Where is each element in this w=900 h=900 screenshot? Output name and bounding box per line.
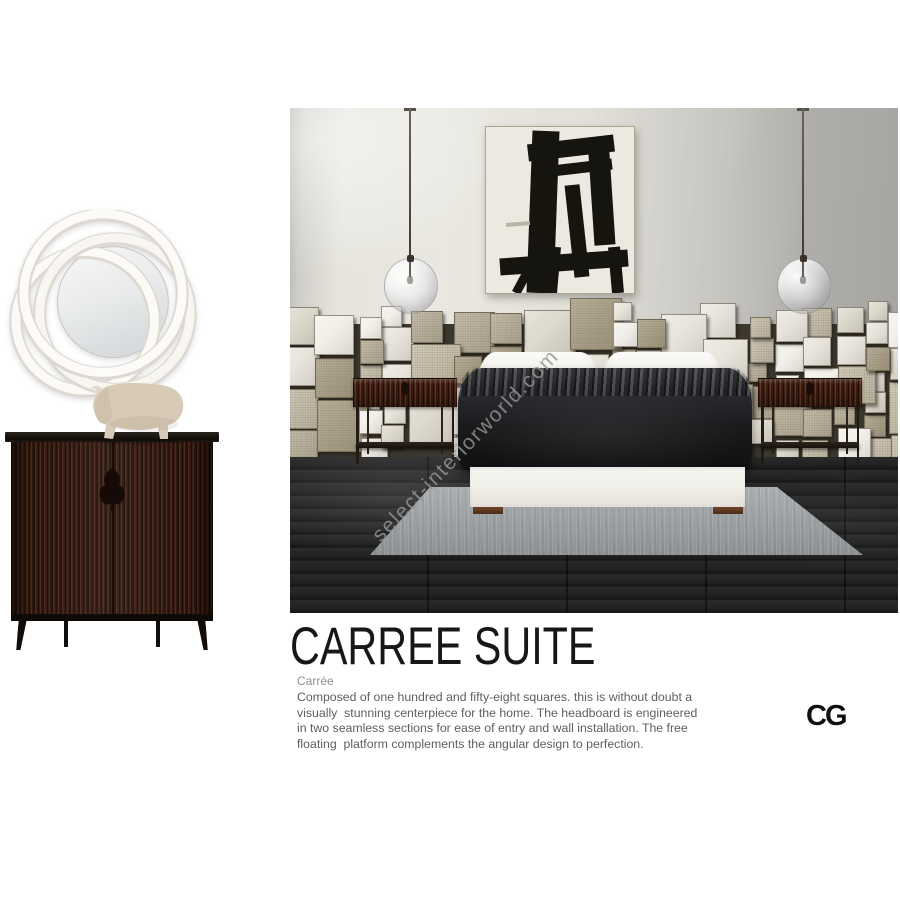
headboard-square	[775, 344, 803, 372]
headboard-square	[803, 337, 831, 365]
headboard-square	[613, 302, 632, 321]
brand-logo: CG	[806, 700, 846, 733]
headboard-square	[837, 336, 866, 365]
nightstand-leg	[857, 406, 860, 464]
platform-bed	[456, 350, 754, 516]
description-line: floating platform complements the angula…	[297, 737, 697, 753]
headboard-square	[866, 347, 890, 371]
headboard-square	[888, 312, 898, 348]
pendant-stem	[409, 262, 410, 277]
nightstand-shelf	[761, 442, 859, 448]
description-line: in two seamless sections for ease of ent…	[297, 721, 697, 737]
nightstand-right	[758, 378, 862, 464]
nightstand-handle	[400, 381, 411, 396]
headboard-square	[868, 301, 889, 322]
cabinet-leg	[156, 621, 160, 647]
headboard-square	[837, 307, 864, 334]
pendant-bulb	[407, 276, 413, 284]
accent-cabinet	[8, 432, 216, 650]
nightstand-leg	[356, 406, 359, 464]
headboard-square	[890, 348, 898, 380]
headboard-square	[380, 327, 414, 361]
cabinet-leg	[15, 621, 26, 650]
product-title: CARREE SUITE	[290, 620, 596, 673]
headboard-square	[637, 319, 666, 348]
description-line: Composed of one hundred and fifty-eight …	[297, 690, 697, 706]
bed-wood-foot	[473, 507, 503, 514]
headboard-square	[866, 322, 888, 344]
pendant-stem	[802, 262, 803, 277]
headboard-square	[613, 322, 638, 347]
nightstand-shelf	[356, 442, 454, 448]
bed-wood-foot	[713, 507, 743, 514]
headboard-square	[360, 317, 382, 339]
nightstand-handle	[805, 381, 816, 396]
sculpture-horn	[91, 386, 102, 393]
product-description: Composed of one hundred and fifty-eight …	[297, 690, 697, 753]
sculpture-shadow	[99, 439, 183, 445]
pendant-fitting	[407, 255, 414, 262]
page-canvas: { "branding": { "watermark": "select-int…	[0, 0, 900, 900]
cabinet-leg	[64, 621, 68, 647]
headboard-square	[360, 340, 384, 364]
headboard-square	[750, 317, 771, 338]
cabinet-carved-handle	[97, 468, 127, 512]
headboard-square	[315, 358, 354, 397]
product-subtitle: Carrée	[297, 674, 334, 688]
pendant-glass-globe	[384, 258, 438, 314]
abstract-artwork	[485, 126, 635, 294]
glass-globe-pendant-right	[777, 108, 829, 318]
glass-globe-pendant-left	[384, 108, 436, 318]
pendant-rod	[802, 108, 804, 260]
pendant-fitting	[800, 255, 807, 262]
headboard-square	[314, 315, 354, 355]
cabinet-leg	[197, 621, 208, 650]
nightstand-leg	[761, 406, 764, 464]
pendant-bulb	[800, 276, 806, 284]
bed-platform-base	[470, 467, 745, 507]
headboard-square	[490, 313, 521, 344]
pendant-rod	[409, 108, 411, 260]
bedroom-photo: select-interiorworld.com	[290, 108, 898, 613]
description-line: visually stunning centerpiece for the ho…	[297, 706, 697, 722]
headboard-square	[889, 382, 898, 434]
cabinet-base	[11, 614, 213, 621]
nightstand-left	[353, 378, 457, 464]
pendant-glass-globe	[777, 258, 831, 314]
bull-sculpture	[86, 378, 196, 446]
